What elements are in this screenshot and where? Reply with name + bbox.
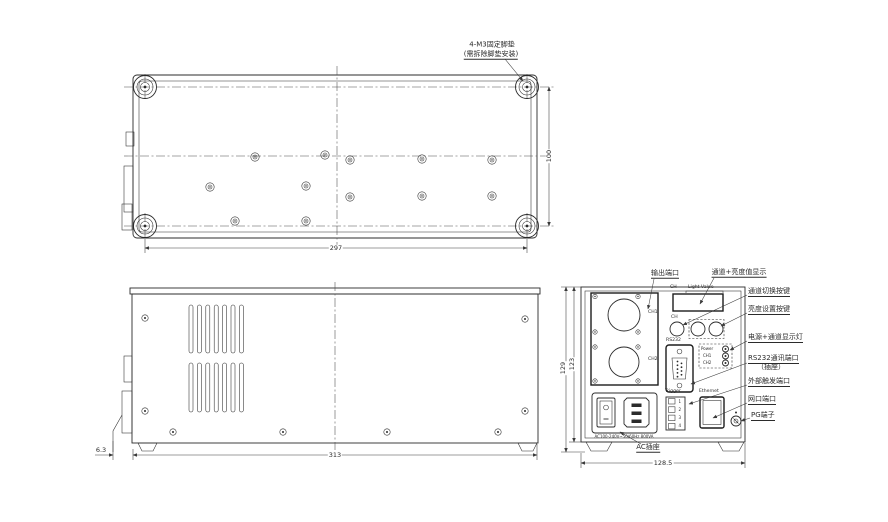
channel-button xyxy=(670,322,684,336)
trigger-pin-2: 2 xyxy=(679,408,682,412)
panel-buttons xyxy=(670,320,724,339)
power-switch xyxy=(597,398,615,427)
dim-side-width: 313 xyxy=(328,452,342,459)
annotation-ac-socket: AC插座 xyxy=(636,444,660,453)
annotation-ext-trigger: 外部触发端口 xyxy=(748,378,790,387)
side-view xyxy=(113,282,540,452)
rs232-label: RS232 xyxy=(666,339,681,344)
channel-button-label: CH xyxy=(671,316,678,321)
value-display xyxy=(673,294,723,311)
rs232-pins xyxy=(677,361,683,378)
trigger-label: Trigger xyxy=(665,390,681,395)
light-value-bracket xyxy=(686,291,723,293)
led-power-label: Power xyxy=(701,347,713,351)
device-foot xyxy=(138,443,157,451)
engineering-drawing: 4-M3固定脚垫 (需拆除脚垫安装) 297 100 313 6.3 129 1… xyxy=(0,0,888,522)
device-foot xyxy=(586,442,612,451)
annotation-lan-port: 网口端口 xyxy=(748,396,776,405)
left-bracket xyxy=(113,356,132,452)
foot-pads xyxy=(134,76,539,238)
annotation-display: 通道+亮度值显示 xyxy=(712,269,767,278)
annotation-leaders xyxy=(505,59,750,444)
annotation-rs232-line2: （插座） xyxy=(757,364,785,371)
iec-inlet xyxy=(624,398,649,427)
annotation-power-leds: 电源+通道显示灯 xyxy=(748,334,803,343)
dim-rear-height-inner: 123 xyxy=(569,357,576,371)
device-foot xyxy=(718,442,744,451)
foot-pad-note-line2: (需拆除脚垫安装) xyxy=(464,51,518,60)
dim-top-height: 100 xyxy=(546,149,553,163)
trigger-pin-3: 3 xyxy=(679,416,682,420)
display-light-value-label: Light Value xyxy=(688,286,714,291)
led-ch1-label: CH1 xyxy=(703,354,711,358)
ethernet-connector xyxy=(700,397,724,428)
brightness-down-button xyxy=(709,322,723,336)
output-connector-ch1 xyxy=(608,299,640,331)
device-foot xyxy=(518,443,537,451)
trigger-pin-4: 4 xyxy=(679,424,682,428)
dim-side-offset: 6.3 xyxy=(95,447,107,454)
ac-rating-label: AC100-240V~50/60Hz 800VA xyxy=(594,435,653,439)
output-ch1-label: CH1 xyxy=(648,311,658,316)
bottom-panel-view xyxy=(122,66,554,247)
output-panel-screws xyxy=(593,294,640,383)
ac-inlet-assembly xyxy=(592,393,657,433)
drawing-linework xyxy=(0,0,888,522)
trigger-pin-1: 1 xyxy=(679,400,682,404)
dim-rear-height-outer: 129 xyxy=(560,361,567,375)
foot-pad-note-line1: 4-M3固定脚垫 xyxy=(469,42,514,49)
dimension-lines xyxy=(95,87,745,468)
rs232-connector xyxy=(666,345,693,392)
annotation-channel-switch: 通道切换按键 xyxy=(748,288,790,297)
annotation-output-port: 输出端口 xyxy=(651,270,679,279)
output-panel xyxy=(591,293,658,385)
led-ch2-label: CH2 xyxy=(703,361,711,365)
annotation-brightness-set: 亮度设置按键 xyxy=(748,306,790,315)
dim-top-width: 297 xyxy=(329,245,343,252)
pg-ground-screw xyxy=(731,412,741,427)
rear-panel-view xyxy=(581,287,745,451)
ethernet-label: Ethernet xyxy=(699,390,719,395)
annotation-pg-terminal: PG端子 xyxy=(751,412,775,421)
trigger-terminal xyxy=(666,397,685,430)
output-connector-ch2 xyxy=(609,347,639,377)
side-connector-tab xyxy=(124,166,133,212)
output-ch2-label: CH2 xyxy=(648,358,658,363)
screw-holes xyxy=(206,151,496,225)
brightness-up-button xyxy=(691,322,705,336)
display-ch-label: CH xyxy=(670,286,677,291)
vent-slots xyxy=(189,305,243,412)
dim-rear-width: 128.5 xyxy=(653,460,674,467)
